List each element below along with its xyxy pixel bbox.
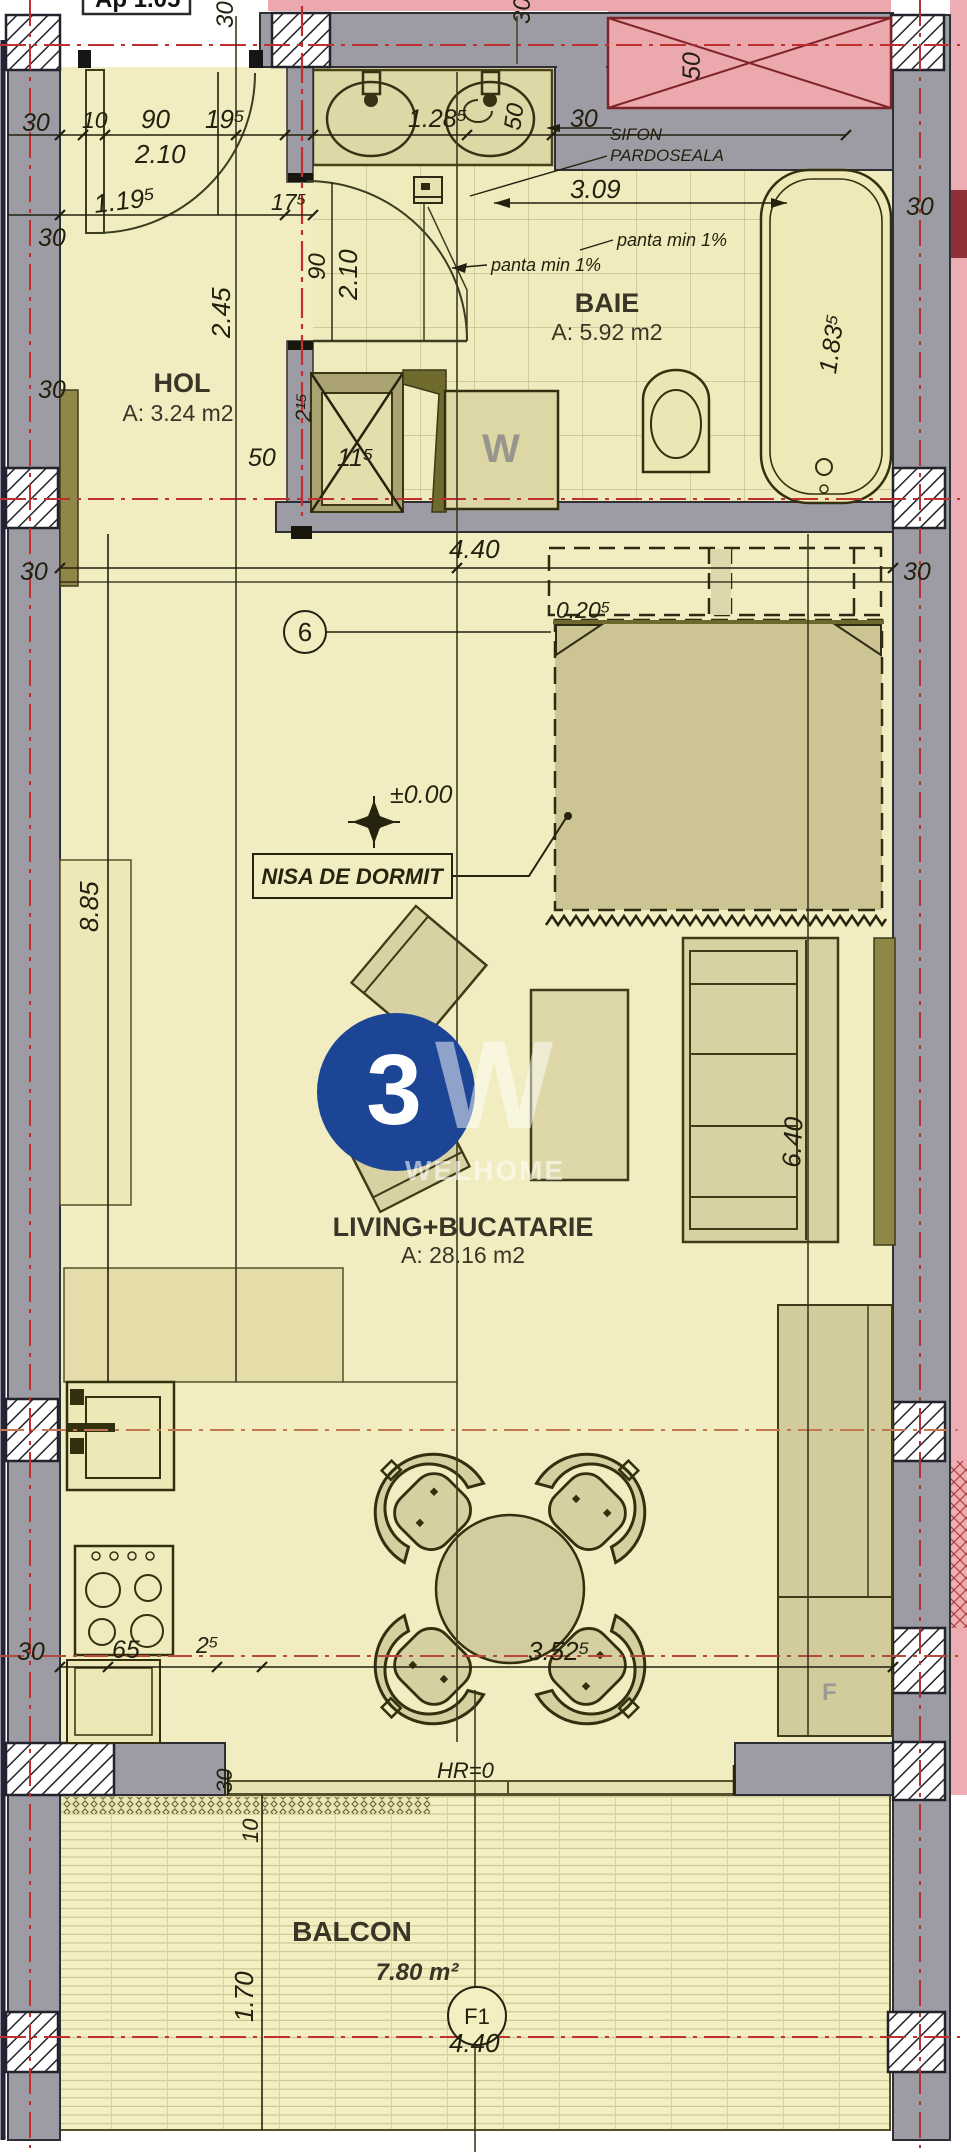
svg-text:30: 30: [22, 109, 50, 137]
svg-text:50: 50: [678, 52, 706, 80]
svg-text:30: 30: [509, 0, 536, 24]
svg-text:50: 50: [499, 101, 530, 132]
svg-text:NISA DE DORMIT: NISA DE DORMIT: [261, 864, 444, 889]
svg-text:A: 5.92 m2: A: 5.92 m2: [551, 319, 662, 345]
svg-text:3.09: 3.09: [570, 174, 621, 204]
svg-text:30: 30: [20, 558, 48, 586]
svg-text:11⁵: 11⁵: [337, 444, 373, 472]
svg-text:2⁵: 2⁵: [195, 1632, 218, 1658]
svg-text:10: 10: [82, 107, 108, 133]
svg-text:10: 10: [238, 1818, 263, 1843]
svg-text:LIVING+BUCATARIE: LIVING+BUCATARIE: [333, 1212, 594, 1242]
svg-text:±0.00: ±0.00: [390, 781, 452, 809]
svg-text:SIFON: SIFON: [610, 125, 663, 144]
svg-text:6: 6: [298, 617, 312, 647]
svg-text:30: 30: [17, 1638, 45, 1666]
svg-text:17⁵: 17⁵: [271, 189, 306, 215]
svg-text:BAIE: BAIE: [575, 288, 640, 318]
svg-text:0.20⁵: 0.20⁵: [556, 597, 610, 623]
svg-text:30: 30: [38, 376, 66, 404]
svg-text:W: W: [435, 1016, 553, 1155]
svg-text:65: 65: [112, 1636, 140, 1664]
svg-text:HOL: HOL: [154, 368, 211, 398]
svg-text:Ap 1.05: Ap 1.05: [95, 0, 180, 13]
svg-text:W: W: [482, 427, 520, 471]
svg-text:30: 30: [212, 1768, 237, 1793]
svg-text:19⁵: 19⁵: [205, 104, 245, 134]
svg-text:2.10: 2.10: [134, 139, 186, 169]
svg-text:4.40: 4.40: [449, 534, 500, 564]
svg-text:2¹⁵: 2¹⁵: [291, 393, 316, 423]
svg-text:6.40: 6.40: [776, 1116, 809, 1169]
svg-text:2.10: 2.10: [333, 249, 363, 301]
svg-text:WELHOME: WELHOME: [405, 1155, 565, 1186]
svg-text:7.80 m²: 7.80 m²: [376, 1959, 460, 1986]
svg-text:A: 28.16 m2: A: 28.16 m2: [401, 1242, 525, 1268]
svg-text:F: F: [822, 1679, 837, 1706]
svg-text:4.40: 4.40: [449, 2028, 500, 2058]
svg-text:panta min 1%: panta min 1%: [490, 255, 601, 275]
svg-text:BALCON: BALCON: [292, 1916, 412, 1947]
svg-text:8.85: 8.85: [74, 881, 104, 932]
svg-text:90: 90: [304, 253, 331, 280]
svg-text:30: 30: [212, 1, 239, 28]
svg-text:3: 3: [366, 1034, 422, 1146]
svg-text:30: 30: [38, 224, 66, 252]
svg-text:2.45: 2.45: [206, 287, 236, 339]
svg-text:PARDOSEALA: PARDOSEALA: [610, 146, 724, 165]
svg-text:HR=0: HR=0: [437, 1758, 495, 1783]
svg-text:panta min 1%: panta min 1%: [616, 230, 727, 250]
svg-text:1.28⁵: 1.28⁵: [408, 105, 467, 133]
svg-text:30: 30: [570, 105, 598, 133]
svg-text:F1: F1: [464, 2004, 490, 2029]
svg-text:50: 50: [248, 444, 276, 472]
svg-text:3.52⁵: 3.52⁵: [528, 1636, 590, 1666]
svg-text:1.70: 1.70: [229, 1971, 259, 2022]
svg-text:30: 30: [906, 193, 934, 221]
svg-text:A: 3.24 m2: A: 3.24 m2: [122, 400, 233, 426]
svg-text:90: 90: [141, 104, 170, 134]
svg-text:30: 30: [903, 558, 931, 586]
